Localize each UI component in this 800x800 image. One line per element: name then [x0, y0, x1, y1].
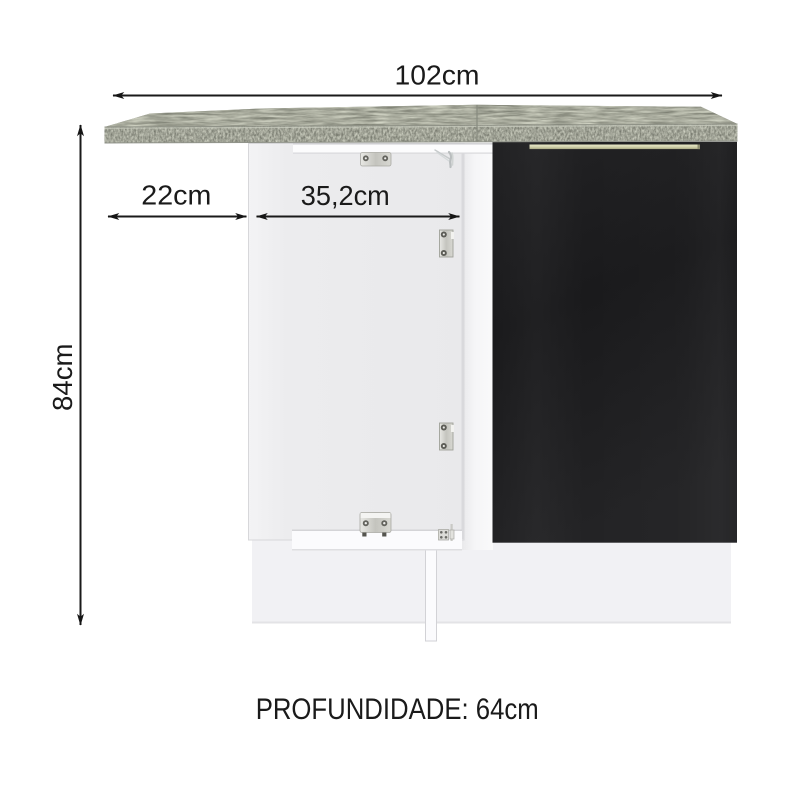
svg-text:PROFUNDIDADE: 64cm: PROFUNDIDADE: 64cm	[256, 693, 539, 726]
svg-text:35,2cm: 35,2cm	[301, 180, 390, 211]
svg-text:102cm: 102cm	[395, 60, 480, 91]
svg-text:84cm: 84cm	[47, 343, 78, 411]
svg-text:22cm: 22cm	[141, 179, 211, 210]
